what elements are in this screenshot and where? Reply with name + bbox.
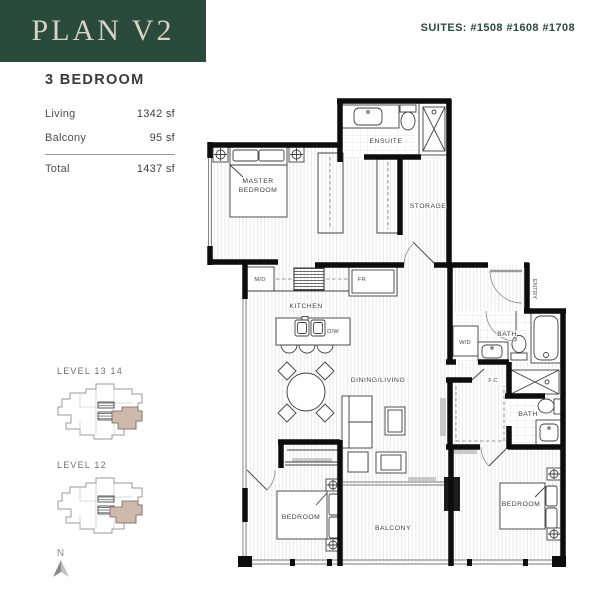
room-label-ensuite: ENSUITE (370, 138, 403, 145)
room-label-master-bedroom: MASTER (242, 178, 273, 185)
room-label-bath-upper: BATH (497, 331, 517, 338)
floorplan-sheet: PLAN V2 SUITES: #1508 #1608 #1708 3 BEDR… (0, 0, 600, 600)
toilet-bowl (512, 336, 526, 353)
room-label-kitchen: KITCHEN (289, 303, 322, 310)
floor-plan: MASTER BEDROOM ENSUITE STORAGE KITCHEN D… (0, 0, 600, 600)
faucet-icon (302, 317, 308, 321)
toilet-bowl (401, 112, 415, 130)
appliance-label-washer-dryer: W/D (459, 340, 471, 346)
console (440, 398, 446, 436)
appliance-label-microwave: M/D (254, 277, 265, 283)
room-label-flex-closet: F.C (488, 378, 497, 384)
cooktop-icon (294, 268, 324, 290)
toilet-tank (400, 105, 416, 112)
toilet-tank (511, 353, 527, 360)
room-label-master-bedroom: BEDROOM (239, 187, 278, 194)
dining-table (287, 373, 325, 411)
console (408, 477, 436, 481)
room-label-storage: STORAGE (410, 203, 447, 210)
appliance-label-dishwasher: D/W (327, 329, 339, 335)
room-label-balcony: BALCONY (375, 525, 411, 532)
fridge (349, 267, 397, 296)
room-label-dining-living: DINING/LIVING (351, 377, 405, 384)
toilet-bowl (538, 399, 554, 413)
appliance-label-fridge: FR (358, 277, 366, 283)
room-label-entry: ENTRY (531, 279, 537, 300)
room-label-bedroom-left: BEDROOM (282, 514, 321, 521)
side-table (348, 452, 368, 472)
room-label-bedroom-right: BEDROOM (502, 501, 541, 508)
room-label-bath-lower: BATH (518, 411, 538, 418)
